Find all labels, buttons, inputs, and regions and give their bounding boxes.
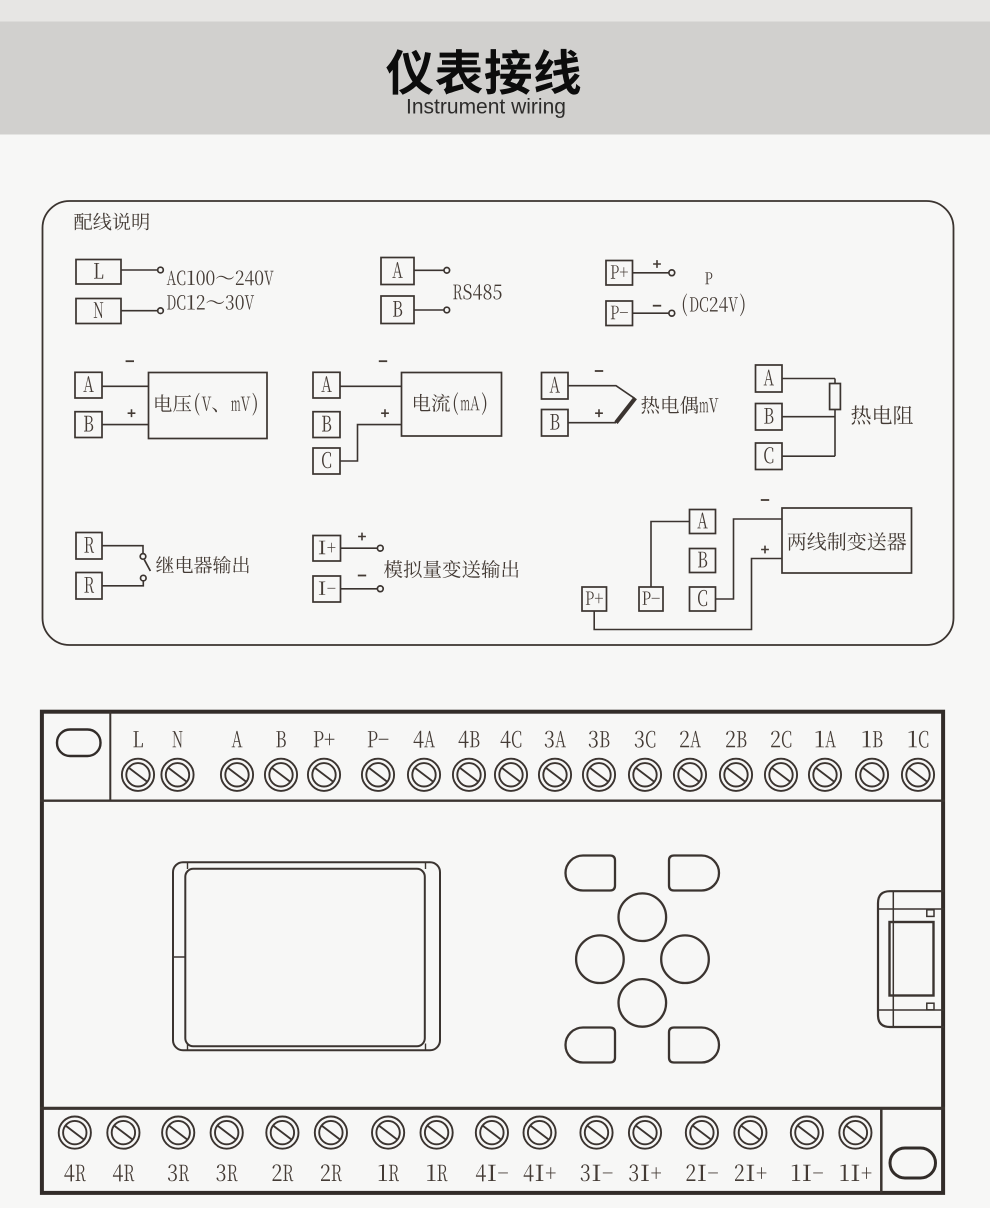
svg-text:Instrument wiring: Instrument wiring — [406, 96, 566, 119]
